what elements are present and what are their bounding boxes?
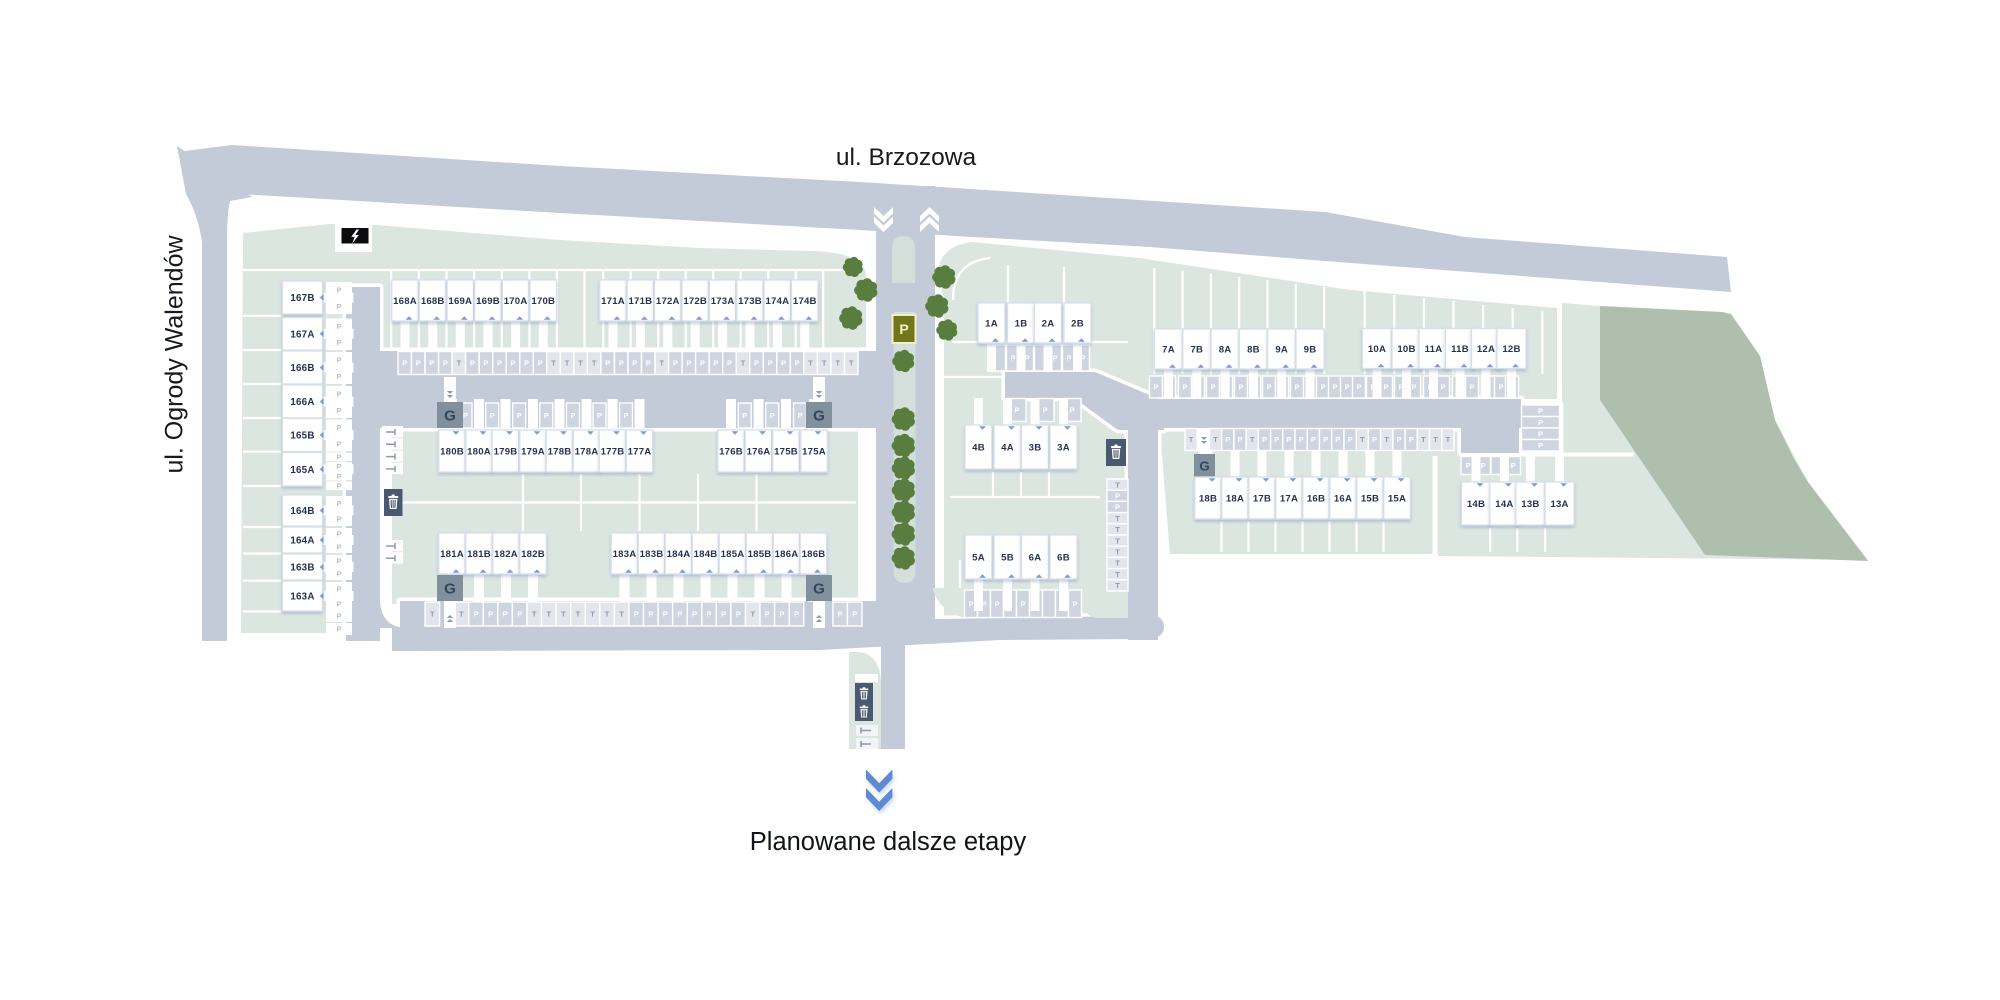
svg-text:166B: 166B bbox=[290, 363, 314, 374]
svg-text:179B: 179B bbox=[494, 447, 518, 458]
svg-text:165B: 165B bbox=[290, 431, 314, 442]
svg-text:P: P bbox=[634, 610, 639, 619]
svg-text:P: P bbox=[1411, 383, 1416, 392]
svg-text:T: T bbox=[808, 359, 813, 368]
svg-text:P: P bbox=[736, 610, 741, 619]
svg-text:182A: 182A bbox=[494, 549, 518, 560]
svg-text:P: P bbox=[336, 472, 341, 481]
svg-text:T: T bbox=[1115, 514, 1120, 523]
svg-text:P: P bbox=[1538, 406, 1543, 415]
svg-text:186A: 186A bbox=[775, 549, 799, 560]
svg-text:P: P bbox=[1286, 435, 1291, 444]
svg-text:T: T bbox=[592, 359, 597, 368]
svg-text:P: P bbox=[1511, 461, 1516, 470]
svg-text:P: P bbox=[1335, 435, 1340, 444]
svg-text:T: T bbox=[576, 610, 581, 619]
svg-text:2B: 2B bbox=[1071, 319, 1084, 330]
svg-text:P: P bbox=[490, 411, 495, 420]
svg-text:T: T bbox=[1384, 435, 1389, 444]
svg-text:P: P bbox=[1344, 383, 1349, 392]
svg-text:15B: 15B bbox=[1361, 494, 1379, 505]
svg-text:P: P bbox=[402, 359, 407, 368]
svg-text:T: T bbox=[1115, 480, 1120, 489]
svg-text:185B: 185B bbox=[748, 549, 772, 560]
svg-text:P: P bbox=[538, 359, 543, 368]
svg-text:P: P bbox=[336, 338, 341, 347]
svg-text:178B: 178B bbox=[548, 447, 572, 458]
svg-text:168B: 168B bbox=[421, 296, 445, 307]
svg-text:T: T bbox=[1115, 548, 1120, 557]
svg-text:P: P bbox=[336, 355, 341, 364]
svg-text:P: P bbox=[1348, 435, 1353, 444]
svg-text:181B: 181B bbox=[467, 549, 491, 560]
svg-text:11B: 11B bbox=[1451, 344, 1469, 355]
svg-text:P: P bbox=[1538, 429, 1543, 438]
svg-text:17B: 17B bbox=[1253, 494, 1271, 505]
svg-text:T: T bbox=[1250, 435, 1255, 444]
svg-text:P: P bbox=[1538, 418, 1543, 427]
svg-text:172B: 172B bbox=[683, 296, 707, 307]
svg-text:16A: 16A bbox=[1334, 494, 1352, 505]
svg-text:P: P bbox=[1266, 383, 1271, 392]
svg-text:169B: 169B bbox=[476, 296, 500, 307]
svg-text:P: P bbox=[1115, 503, 1120, 512]
svg-text:P: P bbox=[336, 406, 341, 415]
svg-text:P: P bbox=[1072, 600, 1077, 609]
svg-text:6B: 6B bbox=[1057, 553, 1070, 564]
svg-text:9B: 9B bbox=[1304, 345, 1317, 356]
svg-text:T: T bbox=[741, 359, 746, 368]
svg-text:175B: 175B bbox=[774, 447, 798, 458]
svg-text:P: P bbox=[1294, 383, 1299, 392]
svg-text:P: P bbox=[1498, 383, 1503, 392]
svg-text:P: P bbox=[1323, 435, 1328, 444]
svg-text:P: P bbox=[1274, 435, 1279, 444]
svg-text:T: T bbox=[430, 610, 435, 619]
svg-text:T: T bbox=[565, 359, 570, 368]
svg-text:P: P bbox=[838, 610, 843, 619]
svg-text:181A: 181A bbox=[440, 549, 464, 560]
svg-text:183B: 183B bbox=[640, 549, 664, 560]
svg-text:P: P bbox=[663, 610, 668, 619]
svg-text:T: T bbox=[619, 610, 624, 619]
svg-text:P: P bbox=[336, 499, 341, 508]
svg-text:P: P bbox=[968, 600, 973, 609]
svg-text:P: P bbox=[646, 359, 651, 368]
svg-text:T: T bbox=[1115, 559, 1120, 568]
svg-text:179A: 179A bbox=[521, 447, 545, 458]
svg-text:177B: 177B bbox=[601, 447, 625, 458]
svg-text:13A: 13A bbox=[1550, 499, 1568, 510]
svg-text:P: P bbox=[770, 411, 775, 420]
svg-text:P: P bbox=[1066, 354, 1071, 363]
svg-text:T: T bbox=[532, 610, 537, 619]
svg-text:P: P bbox=[1225, 435, 1230, 444]
svg-text:P: P bbox=[619, 359, 624, 368]
svg-text:G: G bbox=[813, 580, 825, 597]
svg-text:2A: 2A bbox=[1042, 319, 1055, 330]
svg-text:P: P bbox=[336, 557, 341, 566]
svg-text:P: P bbox=[1311, 435, 1316, 444]
svg-text:P: P bbox=[488, 610, 493, 619]
svg-text:171B: 171B bbox=[629, 296, 653, 307]
svg-text:1A: 1A bbox=[985, 319, 998, 330]
svg-text:G: G bbox=[444, 407, 456, 424]
svg-text:P: P bbox=[623, 411, 628, 420]
svg-text:P: P bbox=[1262, 435, 1267, 444]
svg-text:T: T bbox=[605, 610, 610, 619]
svg-text:T: T bbox=[751, 610, 756, 619]
svg-text:T: T bbox=[835, 359, 840, 368]
svg-text:172A: 172A bbox=[656, 296, 680, 307]
svg-text:P: P bbox=[336, 285, 341, 294]
svg-text:184B: 184B bbox=[694, 549, 718, 560]
svg-text:10A: 10A bbox=[1368, 344, 1386, 355]
svg-text:P: P bbox=[1014, 406, 1019, 415]
svg-text:P: P bbox=[429, 359, 434, 368]
svg-text:P: P bbox=[648, 610, 653, 619]
svg-text:P: P bbox=[1440, 383, 1445, 392]
svg-text:P: P bbox=[336, 612, 341, 621]
svg-text:P: P bbox=[336, 585, 341, 594]
svg-text:176A: 176A bbox=[747, 447, 771, 458]
svg-text:ul. Brzozowa: ul. Brzozowa bbox=[836, 144, 977, 171]
svg-text:176B: 176B bbox=[719, 447, 743, 458]
svg-text:182B: 182B bbox=[521, 549, 545, 560]
svg-text:167A: 167A bbox=[290, 329, 314, 340]
svg-text:P: P bbox=[1320, 383, 1325, 392]
svg-text:P: P bbox=[336, 372, 341, 381]
svg-text:12A: 12A bbox=[1477, 344, 1495, 355]
svg-text:P: P bbox=[336, 423, 341, 432]
svg-text:P: P bbox=[336, 543, 341, 552]
svg-text:3B: 3B bbox=[1029, 443, 1042, 454]
svg-text:P: P bbox=[597, 411, 602, 420]
svg-text:T: T bbox=[578, 359, 583, 368]
svg-text:15A: 15A bbox=[1388, 494, 1406, 505]
svg-text:P: P bbox=[677, 610, 682, 619]
svg-text:P: P bbox=[605, 359, 610, 368]
svg-text:14A: 14A bbox=[1495, 499, 1513, 510]
svg-text:168A: 168A bbox=[393, 296, 417, 307]
svg-text:P: P bbox=[336, 515, 341, 524]
svg-text:14B: 14B bbox=[1467, 499, 1485, 510]
svg-text:P: P bbox=[510, 359, 515, 368]
svg-text:T: T bbox=[1115, 536, 1120, 545]
svg-text:P: P bbox=[852, 610, 857, 619]
svg-text:G: G bbox=[444, 580, 456, 597]
svg-text:P: P bbox=[336, 389, 341, 398]
svg-text:T: T bbox=[459, 610, 464, 619]
svg-text:T: T bbox=[660, 359, 665, 368]
svg-text:P: P bbox=[336, 600, 341, 609]
svg-text:P: P bbox=[700, 359, 705, 368]
svg-text:T: T bbox=[1115, 525, 1120, 534]
svg-text:184A: 184A bbox=[667, 549, 691, 560]
svg-text:12B: 12B bbox=[1502, 344, 1520, 355]
svg-text:P: P bbox=[1052, 354, 1057, 363]
svg-text:P: P bbox=[336, 530, 341, 539]
svg-text:P: P bbox=[1332, 383, 1337, 392]
svg-text:P: P bbox=[692, 610, 697, 619]
svg-text:5A: 5A bbox=[972, 553, 985, 564]
svg-text:174B: 174B bbox=[793, 296, 817, 307]
svg-text:T: T bbox=[1433, 435, 1438, 444]
svg-text:5B: 5B bbox=[1001, 553, 1014, 564]
svg-text:T: T bbox=[1421, 435, 1426, 444]
svg-text:P: P bbox=[1115, 492, 1120, 501]
svg-text:163A: 163A bbox=[290, 592, 314, 603]
svg-text:13B: 13B bbox=[1521, 499, 1539, 510]
svg-text:P: P bbox=[795, 359, 800, 368]
svg-text:170A: 170A bbox=[504, 296, 528, 307]
svg-text:9A: 9A bbox=[1275, 345, 1288, 356]
svg-text:P: P bbox=[706, 610, 711, 619]
svg-text:T: T bbox=[457, 359, 462, 368]
svg-text:1B: 1B bbox=[1015, 319, 1028, 330]
svg-text:P: P bbox=[544, 411, 549, 420]
svg-text:P: P bbox=[727, 359, 732, 368]
svg-text:T: T bbox=[551, 359, 556, 368]
svg-text:P: P bbox=[721, 610, 726, 619]
svg-text:P: P bbox=[336, 439, 341, 448]
svg-text:P: P bbox=[713, 359, 718, 368]
svg-text:T: T bbox=[1115, 581, 1120, 590]
svg-text:T: T bbox=[1189, 435, 1194, 444]
svg-text:P: P bbox=[1469, 383, 1474, 392]
svg-text:P: P bbox=[336, 570, 341, 579]
svg-text:P: P bbox=[1299, 435, 1304, 444]
svg-text:17A: 17A bbox=[1280, 494, 1298, 505]
svg-text:P: P bbox=[1210, 383, 1215, 392]
svg-text:P: P bbox=[517, 411, 522, 420]
svg-text:P: P bbox=[768, 359, 773, 368]
svg-text:T: T bbox=[822, 359, 827, 368]
svg-text:P: P bbox=[1238, 383, 1243, 392]
svg-text:G: G bbox=[1199, 458, 1209, 473]
svg-text:T: T bbox=[561, 610, 566, 619]
svg-text:P: P bbox=[632, 359, 637, 368]
svg-text:185A: 185A bbox=[721, 549, 745, 560]
svg-text:171A: 171A bbox=[601, 296, 625, 307]
svg-text:178A: 178A bbox=[575, 447, 599, 458]
svg-text:4B: 4B bbox=[972, 443, 985, 454]
svg-text:P: P bbox=[1396, 435, 1401, 444]
svg-text:186B: 186B bbox=[802, 549, 826, 560]
svg-text:T: T bbox=[1446, 435, 1451, 444]
svg-text:16B: 16B bbox=[1307, 494, 1325, 505]
svg-text:P: P bbox=[1237, 435, 1242, 444]
svg-text:P: P bbox=[503, 610, 508, 619]
svg-text:P: P bbox=[497, 359, 502, 368]
svg-text:P: P bbox=[994, 600, 999, 609]
svg-text:T: T bbox=[1213, 435, 1218, 444]
svg-text:173B: 173B bbox=[738, 296, 762, 307]
svg-text:P: P bbox=[781, 359, 786, 368]
svg-text:P: P bbox=[797, 411, 802, 420]
svg-text:P: P bbox=[754, 359, 759, 368]
svg-text:P: P bbox=[899, 321, 908, 337]
svg-text:173A: 173A bbox=[711, 296, 735, 307]
svg-text:P: P bbox=[794, 610, 799, 619]
svg-text:P: P bbox=[1020, 600, 1025, 609]
svg-text:T: T bbox=[1360, 435, 1365, 444]
svg-text:P: P bbox=[443, 359, 448, 368]
svg-text:180B: 180B bbox=[440, 447, 464, 458]
svg-text:163B: 163B bbox=[290, 563, 314, 574]
svg-text:P: P bbox=[1538, 441, 1543, 450]
svg-text:P: P bbox=[1356, 383, 1361, 392]
svg-text:170B: 170B bbox=[531, 296, 555, 307]
svg-text:7A: 7A bbox=[1162, 345, 1175, 356]
svg-text:165A: 165A bbox=[290, 465, 314, 476]
svg-text:164A: 164A bbox=[290, 536, 314, 547]
svg-text:P: P bbox=[336, 322, 341, 331]
svg-text:4A: 4A bbox=[1001, 443, 1014, 454]
svg-text:P: P bbox=[1372, 435, 1377, 444]
svg-text:P: P bbox=[1383, 383, 1388, 392]
svg-text:ul. Ogrody Walendów: ul. Ogrody Walendów bbox=[161, 235, 189, 474]
svg-text:P: P bbox=[1481, 461, 1486, 470]
svg-text:18B: 18B bbox=[1199, 494, 1217, 505]
svg-text:P: P bbox=[1042, 406, 1047, 415]
svg-text:T: T bbox=[849, 359, 854, 368]
svg-text:180A: 180A bbox=[467, 447, 491, 458]
svg-text:P: P bbox=[416, 359, 421, 368]
svg-text:P: P bbox=[1409, 435, 1414, 444]
svg-text:169A: 169A bbox=[448, 296, 472, 307]
svg-text:8A: 8A bbox=[1219, 345, 1232, 356]
svg-text:167B: 167B bbox=[290, 293, 314, 304]
svg-text:183A: 183A bbox=[613, 549, 637, 560]
svg-text:3A: 3A bbox=[1057, 443, 1070, 454]
svg-text:18A: 18A bbox=[1226, 494, 1244, 505]
svg-text:P: P bbox=[336, 625, 341, 634]
svg-text:P: P bbox=[779, 610, 784, 619]
svg-text:P: P bbox=[1153, 383, 1158, 392]
svg-text:T: T bbox=[590, 610, 595, 619]
svg-text:P: P bbox=[765, 610, 770, 619]
svg-text:P: P bbox=[570, 411, 575, 420]
svg-text:P: P bbox=[336, 481, 341, 490]
svg-text:P: P bbox=[470, 359, 475, 368]
svg-text:164B: 164B bbox=[290, 506, 314, 517]
svg-text:P: P bbox=[463, 411, 468, 420]
svg-text:P: P bbox=[524, 359, 529, 368]
svg-text:P: P bbox=[1182, 383, 1187, 392]
svg-text:11A: 11A bbox=[1425, 344, 1443, 355]
svg-text:T: T bbox=[1115, 570, 1120, 579]
svg-text:P: P bbox=[1010, 354, 1015, 363]
svg-text:P: P bbox=[1069, 406, 1074, 415]
svg-text:7B: 7B bbox=[1190, 345, 1203, 356]
svg-text:P: P bbox=[1466, 461, 1471, 470]
svg-text:G: G bbox=[813, 407, 825, 424]
svg-text:P: P bbox=[673, 359, 678, 368]
svg-text:166A: 166A bbox=[290, 397, 314, 408]
svg-text:10B: 10B bbox=[1397, 344, 1415, 355]
svg-text:P: P bbox=[336, 453, 341, 462]
svg-text:P: P bbox=[686, 359, 691, 368]
svg-text:P: P bbox=[336, 302, 341, 311]
svg-text:174A: 174A bbox=[766, 296, 790, 307]
svg-text:P: P bbox=[336, 462, 341, 471]
svg-text:P: P bbox=[517, 610, 522, 619]
svg-text:P: P bbox=[742, 411, 747, 420]
svg-text:P: P bbox=[483, 359, 488, 368]
svg-text:Planowane dalsze etapy: Planowane dalsze etapy bbox=[750, 828, 1027, 856]
svg-text:T: T bbox=[547, 610, 552, 619]
svg-text:6A: 6A bbox=[1029, 553, 1042, 564]
svg-text:177A: 177A bbox=[628, 447, 652, 458]
svg-text:P: P bbox=[473, 610, 478, 619]
svg-text:8B: 8B bbox=[1247, 345, 1260, 356]
svg-text:175A: 175A bbox=[802, 447, 826, 458]
